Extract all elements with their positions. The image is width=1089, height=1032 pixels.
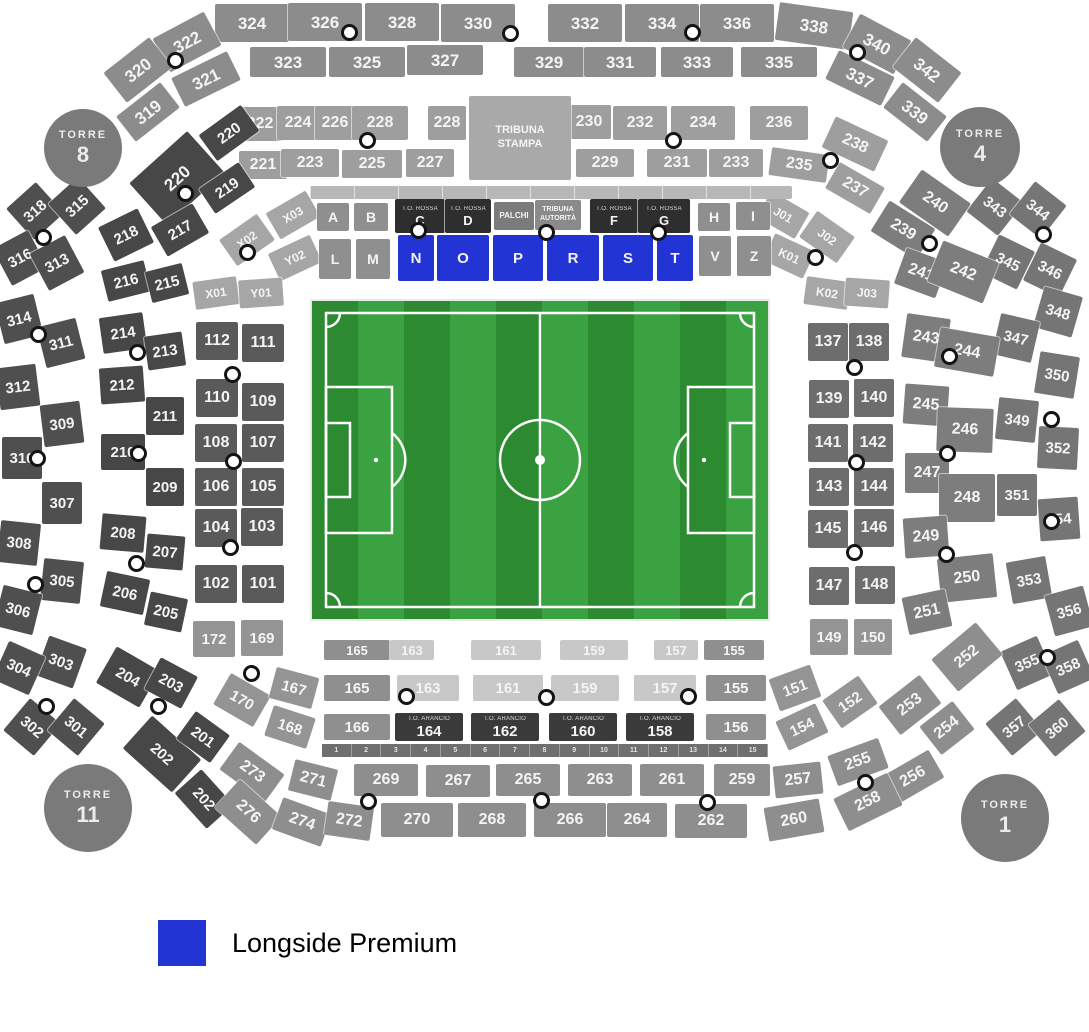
section-141: 141: [808, 424, 848, 462]
section-p[interactable]: P: [493, 235, 543, 281]
section-143: 143: [809, 468, 849, 506]
stadium-seat-map: 3243263283303323343363383223403203423213…: [0, 0, 1089, 1032]
section-o[interactable]: O: [437, 235, 489, 281]
section-208: 208: [100, 513, 147, 553]
section-328: 328: [365, 3, 439, 41]
gate-dot-icon: [359, 132, 376, 149]
tower-torre-11: TORRE11: [44, 764, 132, 852]
section-348: 348: [1033, 286, 1083, 337]
section-257: 257: [772, 762, 823, 799]
section-sub-label: T.O. ROSSA: [596, 206, 632, 212]
section-r[interactable]: R: [547, 235, 599, 281]
section-sub-label: T.O. ARANCIO: [484, 716, 526, 722]
tower-word: TORRE: [59, 129, 107, 141]
section-159: 159: [551, 675, 619, 701]
section-251: 251: [902, 589, 953, 635]
section-332: 332: [548, 4, 622, 42]
section-228: 228: [428, 106, 466, 140]
section-304: 304: [0, 641, 46, 696]
gate-dot-icon: [849, 44, 866, 61]
tower-number: 1: [999, 812, 1011, 838]
gate-dot-icon: [398, 688, 415, 705]
row-number-cell: 13: [679, 744, 709, 757]
section-149: 149: [810, 619, 848, 655]
gate-dot-icon: [130, 445, 147, 462]
section-164: T.O. ARANCIO164: [395, 713, 463, 741]
section-147: 147: [809, 567, 849, 605]
section-311: 311: [37, 318, 86, 368]
section-148: 148: [855, 566, 895, 604]
section-352: 352: [1037, 426, 1079, 470]
section-329: 329: [514, 47, 584, 77]
section-168: 168: [264, 705, 316, 749]
section-358: 358: [1041, 640, 1089, 695]
section-b: B: [354, 203, 388, 231]
section-205: 205: [144, 591, 188, 632]
section-x01: X01: [192, 276, 239, 310]
row-number-cell: 11: [619, 744, 649, 757]
row-number-cell: 2: [352, 744, 382, 757]
tower-torre-4: TORRE4: [940, 107, 1020, 187]
section-146: 146: [854, 509, 894, 547]
section-325: 325: [329, 47, 405, 77]
gate-dot-icon: [222, 539, 239, 556]
section-261: 261: [640, 764, 704, 796]
section-232: 232: [613, 106, 667, 140]
section-206: 206: [100, 571, 151, 615]
row-number-strip: 123456789101112131415: [322, 744, 768, 757]
section-226: 226: [315, 106, 355, 140]
gate-dot-icon: [699, 794, 716, 811]
section-label: 158: [647, 724, 672, 739]
section-v: V: [699, 236, 731, 276]
section-213: 213: [144, 332, 186, 371]
section-106: 106: [195, 468, 237, 506]
tower-number: 8: [77, 142, 89, 168]
row-number-cell: 9: [560, 744, 590, 757]
row-number-cell: 6: [471, 744, 501, 757]
football-pitch: [312, 301, 768, 619]
legend: Longside Premium: [158, 920, 457, 966]
section-169: 169: [241, 620, 283, 656]
gate-dot-icon: [341, 24, 358, 41]
tower-torre-8: TORRE8: [44, 109, 122, 187]
section-157: 157: [654, 640, 698, 660]
section-166: 166: [324, 714, 390, 740]
gate-dot-icon: [846, 544, 863, 561]
section-333: 333: [661, 47, 733, 77]
gate-dot-icon: [848, 454, 865, 471]
tower-word: TORRE: [981, 799, 1029, 811]
section-162: T.O. ARANCIO162: [471, 713, 539, 741]
gate-dot-icon: [1043, 411, 1060, 428]
section-m: M: [356, 239, 390, 279]
section-224: 224: [277, 106, 319, 140]
gate-dot-icon: [807, 249, 824, 266]
section-sub-label: T.O. ROSSA: [450, 206, 486, 212]
gate-dot-icon: [680, 688, 697, 705]
section-150: 150: [854, 619, 892, 655]
section-230: 230: [567, 105, 611, 139]
section-n[interactable]: N: [398, 235, 434, 281]
section-140: 140: [854, 379, 894, 417]
section-label: F: [610, 214, 618, 227]
gate-dot-icon: [857, 774, 874, 791]
section-label: 160: [570, 724, 595, 739]
section-palchi: PALCHI: [494, 202, 534, 230]
section-d: T.O. ROSSAD: [445, 199, 491, 233]
section-111: 111: [242, 324, 284, 362]
row-number-cell: 1: [322, 744, 352, 757]
section-167: 167: [269, 667, 320, 709]
gate-dot-icon: [35, 229, 52, 246]
section-356: 356: [1044, 586, 1089, 637]
section-152: 152: [822, 675, 878, 728]
row-number-cell: 15: [738, 744, 768, 757]
gate-dot-icon: [665, 132, 682, 149]
section-155: 155: [706, 675, 766, 701]
gate-dot-icon: [224, 366, 241, 383]
section-tribuna-stampa: TRIBUNA STAMPA: [469, 96, 571, 180]
section-270: 270: [381, 803, 453, 837]
section-158: T.O. ARANCIO158: [626, 713, 694, 741]
section-305: 305: [40, 558, 84, 604]
section-264: 264: [607, 803, 667, 837]
section-155: 155: [704, 640, 764, 660]
section-360: 360: [1028, 699, 1086, 757]
gate-dot-icon: [650, 224, 667, 241]
legend-swatch-longside-premium: [158, 920, 206, 966]
section-170: 170: [213, 673, 271, 727]
section-229: 229: [576, 149, 634, 177]
section-308: 308: [0, 520, 41, 566]
row-number-cell: 7: [500, 744, 530, 757]
section-216: 216: [101, 260, 151, 302]
gate-dot-icon: [939, 445, 956, 462]
section-t[interactable]: T: [657, 235, 693, 281]
section-a: A: [317, 203, 349, 231]
tower-word: TORRE: [64, 789, 112, 801]
section-301: 301: [47, 698, 105, 756]
section-172: 172: [193, 621, 235, 657]
gate-dot-icon: [921, 235, 938, 252]
gate-dot-icon: [846, 359, 863, 376]
section-163: 163: [390, 640, 434, 660]
gate-dot-icon: [941, 348, 958, 365]
section-156: 156: [706, 714, 766, 740]
section-259: 259: [714, 764, 770, 796]
gate-dot-icon: [29, 450, 46, 467]
section-223: 223: [281, 149, 339, 177]
section-105: 105: [242, 468, 284, 506]
section-161: 161: [471, 640, 541, 660]
gate-dot-icon: [538, 689, 555, 706]
gate-dot-icon: [410, 222, 427, 239]
section-236: 236: [750, 106, 808, 140]
section-231: 231: [647, 149, 707, 177]
section-207: 207: [145, 533, 186, 570]
section-112: 112: [196, 322, 238, 360]
gate-dot-icon: [30, 326, 47, 343]
section-235: 235: [768, 147, 829, 183]
gate-dot-icon: [129, 344, 146, 361]
row-number-cell: 14: [709, 744, 739, 757]
section-349: 349: [995, 397, 1039, 443]
section-label: D: [463, 214, 472, 227]
section-label: 162: [492, 724, 517, 739]
section-225: 225: [342, 150, 402, 178]
gate-dot-icon: [684, 24, 701, 41]
gate-dot-icon: [538, 224, 555, 241]
section-h: H: [698, 203, 730, 231]
section-sub-label: T.O. ARANCIO: [562, 716, 604, 722]
section-336: 336: [700, 4, 774, 42]
section-y01: Y01: [238, 277, 284, 308]
section-138: 138: [849, 323, 889, 361]
row-number-cell: 8: [530, 744, 560, 757]
section-323: 323: [250, 47, 326, 77]
gate-dot-icon: [167, 52, 184, 69]
row-number-cell: 12: [649, 744, 679, 757]
section-267: 267: [426, 765, 490, 797]
section-248: 248: [939, 474, 995, 522]
gate-dot-icon: [239, 244, 256, 261]
tower-torre-1: TORRE1: [961, 774, 1049, 862]
section-265: 265: [496, 764, 560, 796]
row-number-cell: 4: [411, 744, 441, 757]
row-number-cell: 10: [590, 744, 620, 757]
tower-number: 11: [76, 802, 99, 828]
section-274: 274: [272, 797, 332, 847]
section-101: 101: [242, 565, 284, 603]
section-s[interactable]: S: [603, 235, 653, 281]
gate-dot-icon: [360, 793, 377, 810]
gate-dot-icon: [177, 185, 194, 202]
section-331: 331: [584, 47, 656, 77]
section-165: 165: [324, 640, 390, 660]
section-260: 260: [763, 798, 824, 841]
section-f: T.O. ROSSAF: [590, 199, 638, 233]
section-351: 351: [997, 474, 1037, 516]
section-237: 237: [825, 162, 885, 214]
row-number-cell: 3: [381, 744, 411, 757]
tower-number: 4: [974, 141, 986, 167]
section-159: 159: [560, 640, 628, 660]
section-137: 137: [808, 323, 848, 361]
section-218: 218: [98, 208, 154, 261]
section-103: 103: [241, 508, 283, 546]
section-233: 233: [709, 149, 763, 177]
section-307: 307: [42, 482, 82, 524]
section-label: 164: [416, 724, 441, 739]
section-271: 271: [288, 759, 338, 801]
section-j03: J03: [844, 277, 890, 308]
section-324: 324: [215, 4, 289, 42]
gate-dot-icon: [150, 698, 167, 715]
section-269: 269: [354, 764, 418, 796]
section-sub-label: T.O. ARANCIO: [639, 716, 681, 722]
section-263: 263: [568, 764, 632, 796]
section-242: 242: [927, 240, 999, 303]
gate-dot-icon: [38, 698, 55, 715]
section-145: 145: [808, 510, 848, 548]
gate-dot-icon: [225, 453, 242, 470]
gate-dot-icon: [938, 546, 955, 563]
section-327: 327: [407, 45, 483, 75]
pitch-markings: [312, 301, 768, 619]
section-109: 109: [242, 383, 284, 421]
section-161: 161: [473, 675, 543, 701]
section-110: 110: [196, 379, 238, 417]
section-i: I: [736, 202, 770, 230]
section-z: Z: [737, 236, 771, 276]
gate-dot-icon: [822, 152, 839, 169]
section-107: 107: [242, 424, 284, 462]
section-350: 350: [1034, 351, 1080, 399]
section-139: 139: [809, 380, 849, 418]
gate-dot-icon: [502, 25, 519, 42]
section-338: 338: [775, 2, 854, 50]
section-309: 309: [40, 401, 85, 448]
section-312: 312: [0, 364, 40, 411]
gate-dot-icon: [1039, 649, 1056, 666]
gate-dot-icon: [533, 792, 550, 809]
section-227: 227: [406, 149, 454, 177]
gate-dot-icon: [1035, 226, 1052, 243]
section-160: T.O. ARANCIO160: [549, 713, 617, 741]
section-252: 252: [931, 622, 1002, 691]
section-209: 209: [146, 468, 184, 506]
section-335: 335: [741, 47, 817, 77]
gate-dot-icon: [128, 555, 145, 572]
section-sub-label: T.O. ROSSA: [402, 206, 438, 212]
section-sub-label: T.O. ARANCIO: [408, 716, 450, 722]
upper-divider-strip: [310, 186, 792, 199]
gate-dot-icon: [27, 576, 44, 593]
gate-dot-icon: [1043, 513, 1060, 530]
section-144: 144: [854, 468, 894, 506]
section-215: 215: [145, 263, 190, 303]
section-165: 165: [324, 675, 390, 701]
row-number-cell: 5: [441, 744, 471, 757]
section-211: 211: [146, 397, 184, 435]
section-102: 102: [195, 565, 237, 603]
section-l: L: [319, 239, 351, 279]
tower-word: TORRE: [956, 128, 1004, 140]
section-y02: Y02: [268, 235, 322, 282]
section-268: 268: [458, 803, 526, 837]
section-sub-label: T.O. ROSSA: [646, 206, 682, 212]
legend-label: Longside Premium: [232, 928, 457, 959]
gate-dot-icon: [243, 665, 260, 682]
section-212: 212: [99, 366, 145, 405]
